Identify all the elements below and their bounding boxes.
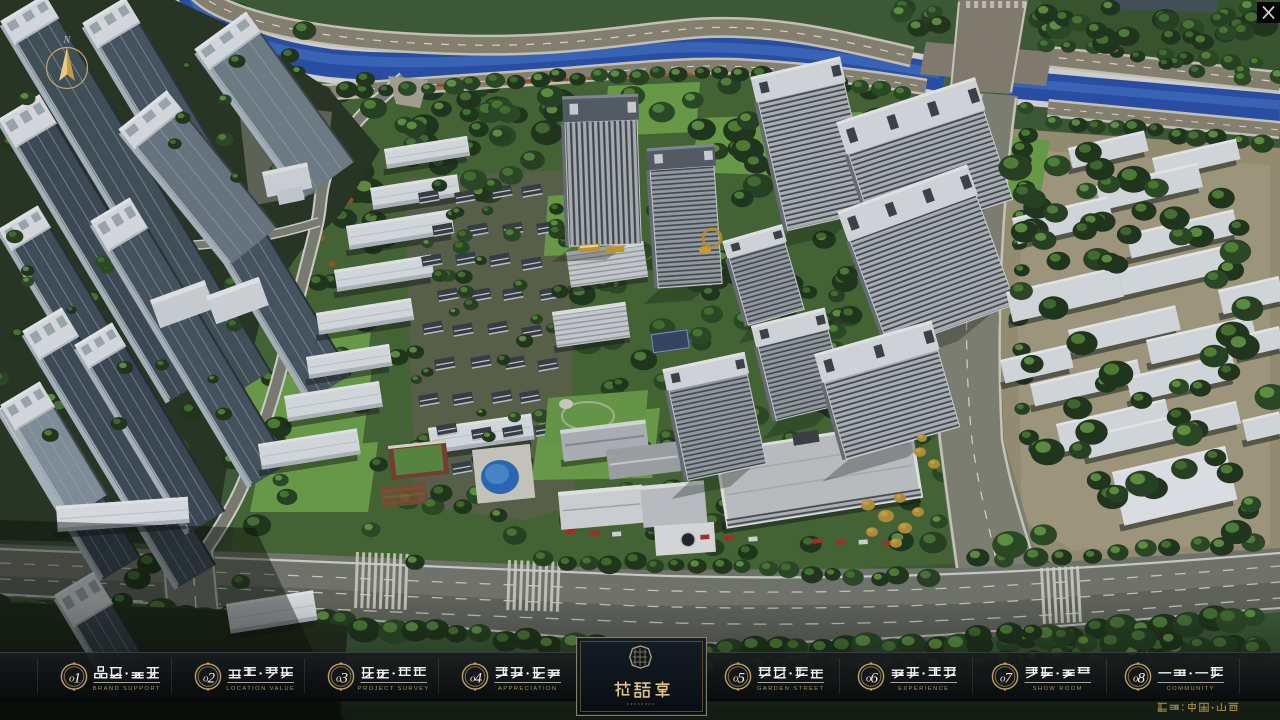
svg-text:PROJECT SURVEY: PROJECT SURVEY — [358, 686, 430, 692]
svg-text:2: 2 — [207, 671, 215, 687]
svg-text:6: 6 — [871, 671, 879, 687]
svg-text:8: 8 — [1138, 671, 1146, 687]
svg-text:LOCATION VALUE: LOCATION VALUE — [226, 686, 295, 692]
svg-text:1: 1 — [74, 671, 82, 687]
svg-text:BRAND SUPPORT: BRAND SUPPORT — [93, 686, 161, 692]
svg-text:GARDEN STREET: GARDEN STREET — [757, 686, 824, 692]
svg-text:COMMUNITY: COMMUNITY — [1167, 686, 1215, 692]
svg-text:EXPERIENCE: EXPERIENCE — [898, 686, 949, 692]
svg-text:3: 3 — [340, 671, 349, 687]
svg-text:5: 5 — [737, 671, 745, 687]
svg-text:4: 4 — [474, 671, 482, 687]
svg-text:N: N — [63, 35, 72, 46]
svg-text:SHOW ROOM: SHOW ROOM — [1032, 686, 1082, 692]
svg-text:APPRECIATION: APPRECIATION — [497, 686, 557, 692]
